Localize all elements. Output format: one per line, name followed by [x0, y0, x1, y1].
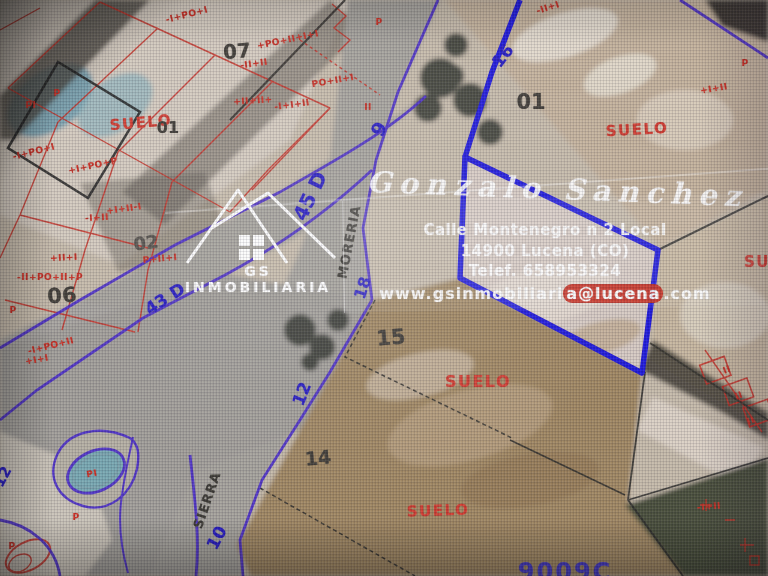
parcel-number: 01	[516, 92, 545, 113]
cadastral-mark: P	[72, 513, 79, 522]
watermark-web-line: www.gsinmobiliaria@lucena.com	[345, 284, 745, 303]
cadastral-mark: P	[9, 306, 16, 315]
watermark-address-line: Calle Montenegro n 2 Local	[345, 221, 745, 239]
parcel-number: 15	[376, 326, 407, 349]
agency-logo: GS INMOBILIARIA	[172, 185, 344, 287]
sector-code-label: 9009C	[518, 560, 612, 576]
suelo-label: SUELO	[445, 374, 511, 390]
cadastral-mark: P	[375, 18, 382, 27]
parcel-number: 06	[47, 285, 78, 308]
cadastral-mark: P	[8, 542, 15, 551]
suelo-label: SUELO	[406, 502, 469, 519]
cadastral-mark: PI	[86, 469, 98, 480]
logo-window-icon	[239, 235, 264, 260]
cadastral-mark: II	[364, 103, 372, 112]
cadastral-mark: P	[741, 59, 748, 68]
parcel-number: 14	[304, 447, 332, 468]
web-pre: www.gsinmobiliari	[379, 284, 563, 303]
web-post: .com	[663, 284, 710, 303]
parcel-number: 02	[132, 232, 159, 253]
parcel-number: 01	[157, 120, 179, 136]
agency-name-label: GS INMOBILIARIA	[174, 263, 342, 295]
cadastral-mark: -II+PO+II+P	[17, 273, 83, 282]
cadastral-mark: PI	[26, 101, 37, 110]
suelo-label: SUELO	[605, 121, 668, 139]
cadastral-mark: P	[53, 89, 60, 98]
web-highlight: a@lucena	[563, 284, 663, 303]
cadastral-mark: -I+II	[85, 213, 109, 224]
cadastral-map-photo: SUELO SUELO SUELO SUELO SUELO 01 07 02 0…	[0, 0, 768, 576]
watermark-city-line: 14900 Lucena (CO)	[345, 242, 745, 260]
watermark-phone-line: Telef. 658953324	[345, 262, 745, 280]
cadastral-mark: +II+I	[50, 253, 78, 263]
